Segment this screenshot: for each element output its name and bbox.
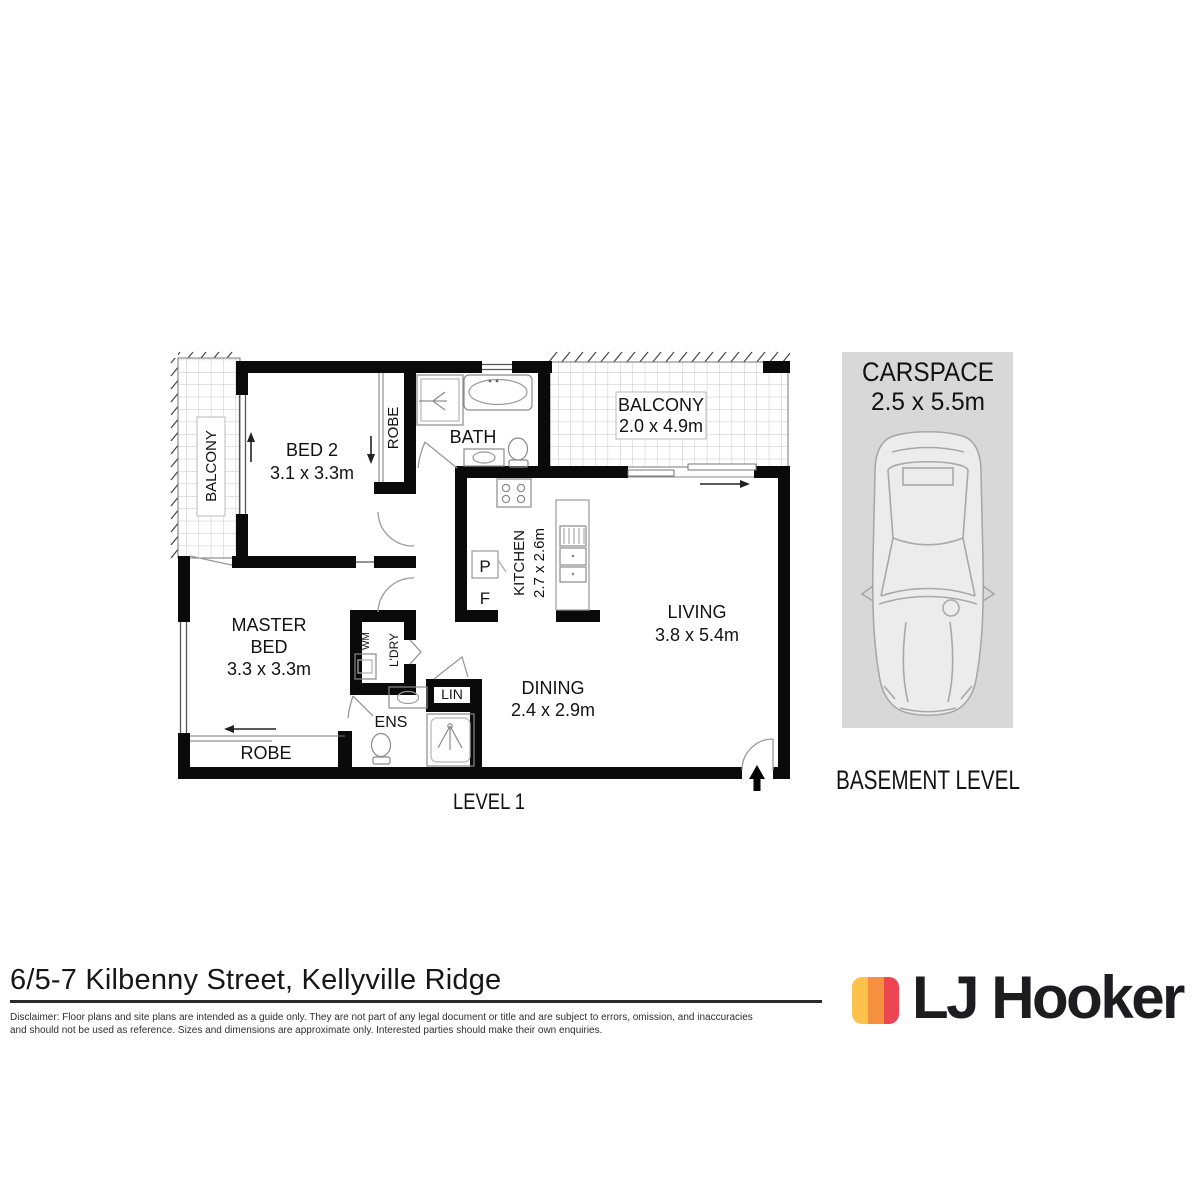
balcony-top-label: BALCONY xyxy=(618,395,704,415)
robe-master-label: ROBE xyxy=(240,743,291,763)
carspace-dims: 2.5 x 5.5m xyxy=(871,388,985,416)
wm-label: WM xyxy=(361,632,372,650)
balcony-top-dims: 2.0 x 4.9m xyxy=(619,416,703,436)
linen-label: LIN xyxy=(441,686,463,702)
disclaimer-line-1: Disclaimer: Floor plans and site plans a… xyxy=(10,1011,840,1024)
lj-hooker-logo-icon xyxy=(852,977,899,1024)
disclaimer-text: Disclaimer: Floor plans and site plans a… xyxy=(10,1011,840,1037)
kitchen-label: KITCHEN xyxy=(511,530,528,596)
carspace: CARSPACE 2.5 x 5.5m BASEMENT LEVEL xyxy=(836,352,1020,795)
carspace-title: CARSPACE xyxy=(862,357,994,387)
master-bed-dims: 3.3 x 3.3m xyxy=(227,659,311,679)
level-label: LEVEL 1 xyxy=(453,789,525,814)
laundry-label: L'DRY xyxy=(387,633,401,667)
address-underline xyxy=(10,1000,822,1003)
disclaimer-line-2: and should not be used as reference. Siz… xyxy=(10,1024,840,1037)
floorplan-page: BALCONY BALCONY 2.0 x 4.9m xyxy=(0,0,1200,1200)
living-dims: 3.8 x 5.4m xyxy=(655,625,739,645)
balcony-left-label: BALCONY xyxy=(203,430,220,502)
left-balcony: BALCONY xyxy=(168,350,240,566)
floor-plan-drawing: BALCONY BALCONY 2.0 x 4.9m xyxy=(0,0,1200,950)
top-balcony: BALCONY 2.0 x 4.9m xyxy=(545,350,790,467)
bath-fixtures xyxy=(417,375,532,467)
entry-arrow-icon xyxy=(749,765,765,791)
bed2-dims: 3.1 x 3.3m xyxy=(270,463,354,483)
living-label: LIVING xyxy=(667,602,726,622)
lj-hooker-logo-text: LJ Hooker xyxy=(912,963,1183,1032)
basement-level-label: BASEMENT LEVEL xyxy=(836,765,1020,795)
property-address: 6/5-7 Kilbenny Street, Kellyville Ridge xyxy=(10,964,501,997)
dining-label: DINING xyxy=(522,678,585,698)
car-top-view-icon xyxy=(862,432,994,716)
bed2-label: BED 2 xyxy=(286,440,338,460)
bath-label: BATH xyxy=(450,427,497,447)
pantry-label: P xyxy=(479,557,490,576)
ensuite-label: ENS xyxy=(375,714,408,731)
kitchen-dims: 2.7 x 2.6m xyxy=(531,528,548,598)
fridge-label: F xyxy=(480,589,490,608)
robe-bed2-label: ROBE xyxy=(385,407,402,450)
master-bed-label-2: BED xyxy=(250,637,287,657)
dining-dims: 2.4 x 2.9m xyxy=(511,700,595,720)
lj-hooker-logo: LJ Hooker xyxy=(852,977,899,1037)
master-bed-label-1: MASTER xyxy=(231,615,306,635)
